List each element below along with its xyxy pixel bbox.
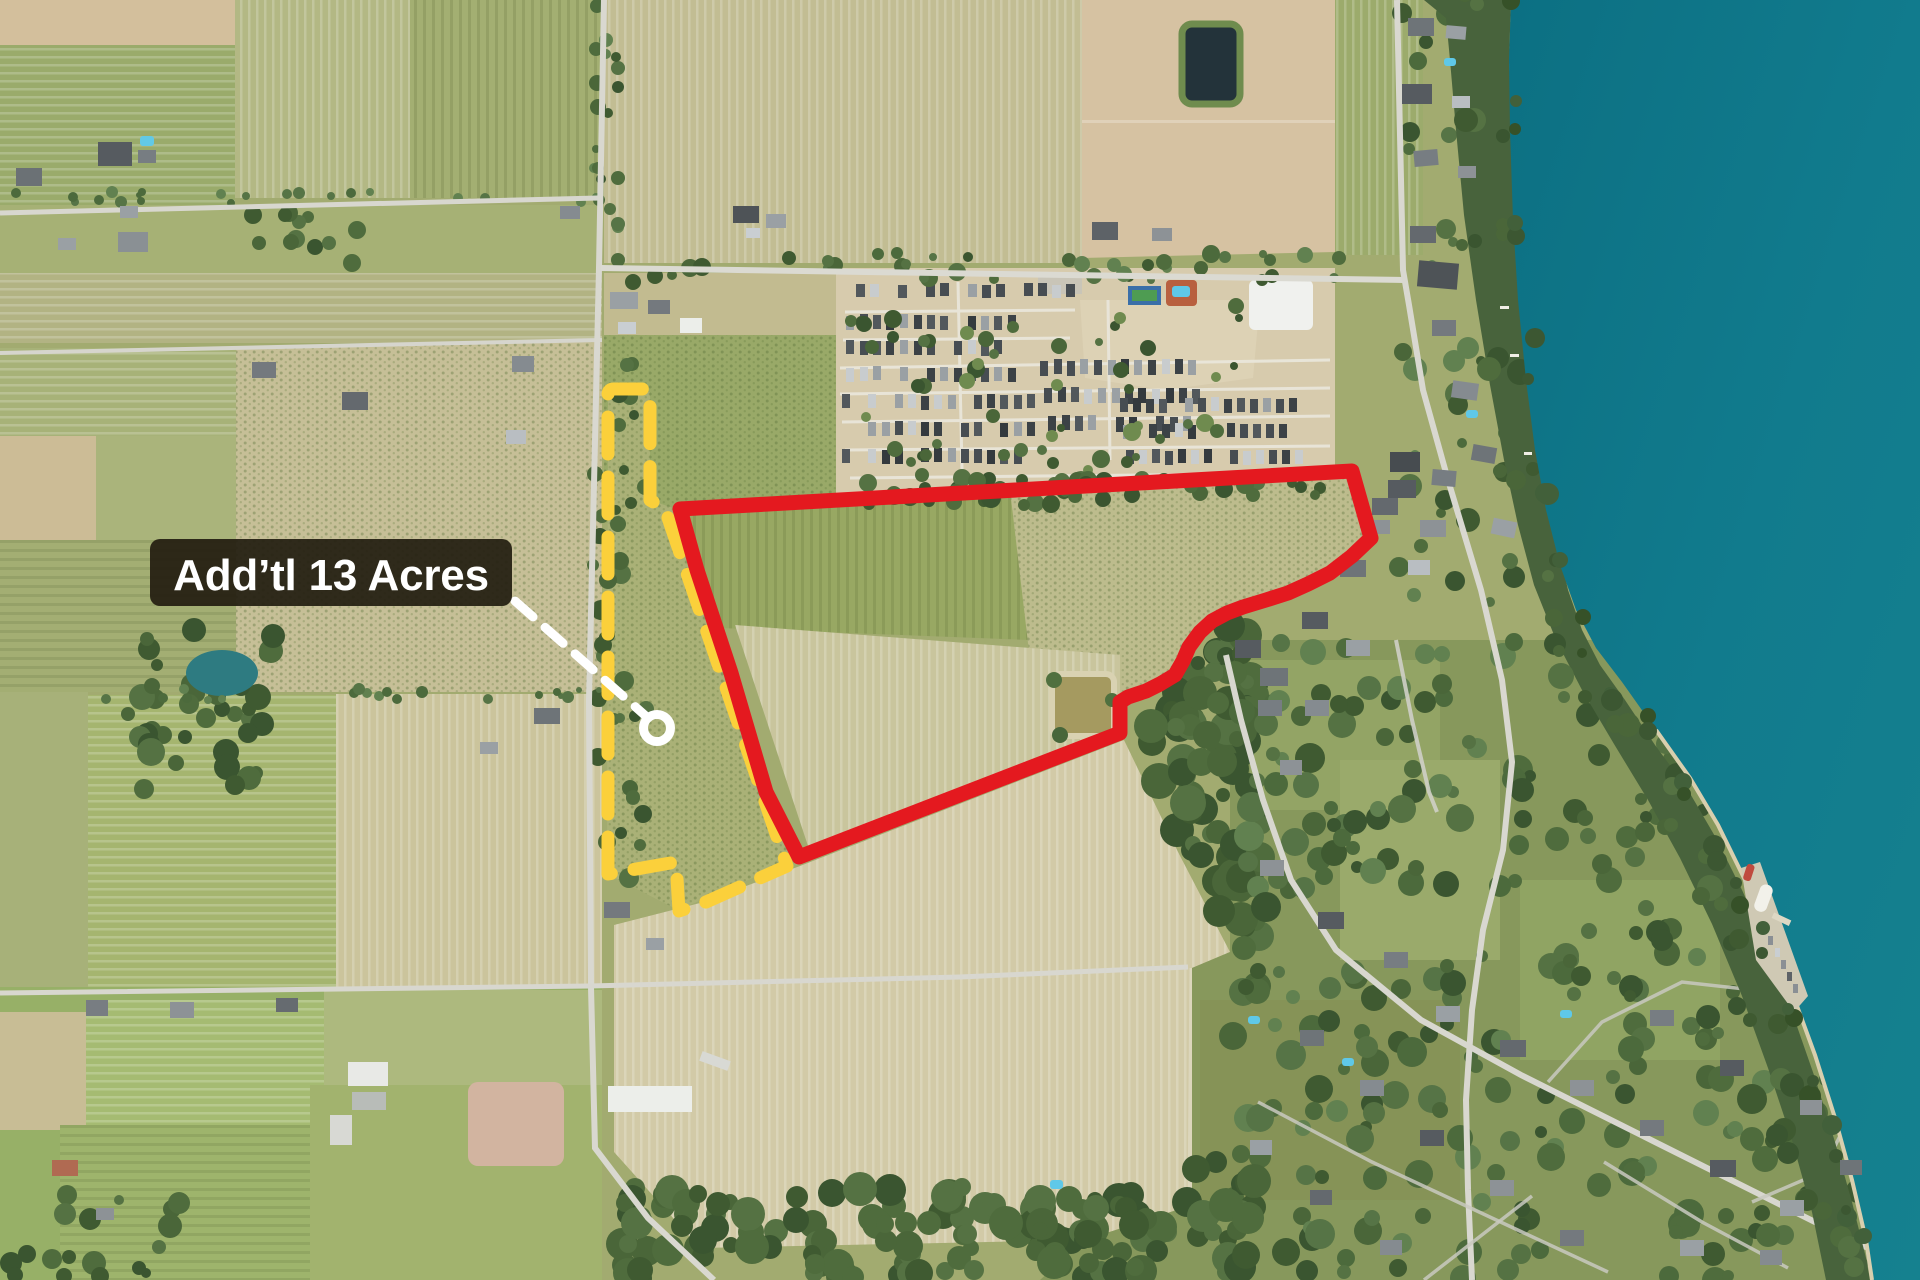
svg-text:Add’tl 13 Acres: Add’tl 13 Acres — [173, 551, 489, 600]
